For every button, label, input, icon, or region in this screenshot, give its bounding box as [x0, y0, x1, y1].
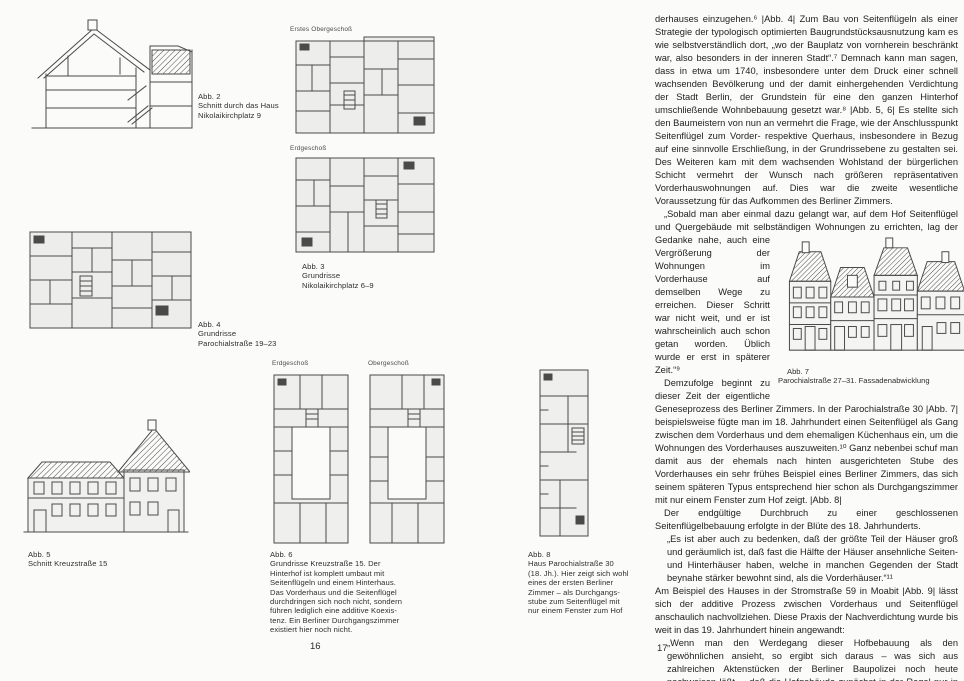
page-left: Abb. 2 Schnitt durch das Haus Nikolaikir… — [0, 0, 612, 681]
body-text-column: derhauses einzugehen.⁶ |Abb. 4| Zum Bau … — [655, 13, 958, 681]
fig7-figure: Abb. 7 Parochialstraße 27–31. Fassadenab… — [778, 236, 958, 386]
fig3-plans: Erstes Obergeschoß Erdgeschoß — [288, 26, 440, 259]
paragraph: „Sobald man aber einmal dazu gelangt war… — [655, 208, 958, 377]
paragraph: Der endgültige Durchbruch zu einer gesch… — [655, 507, 958, 533]
fig6-label-right: Obergeschoß — [368, 360, 448, 367]
page-number-left: 16 — [310, 641, 321, 652]
fig4-caption: Abb. 4 Grundrisse Parochialstraße 19–23 — [198, 320, 318, 348]
fig8-plan-drawing — [528, 366, 600, 540]
fig4-plan-drawing — [28, 228, 193, 331]
fig3-label-lower: Erdgeschoß — [290, 145, 440, 152]
fig5-elevation-drawing — [22, 418, 190, 542]
paragraph-text: „Sobald man aber einmal dazu gelangt war… — [655, 209, 958, 232]
fig5-caption: Abb. 5 Schnitt Kreuzstraße 15 — [28, 550, 178, 569]
fig6-label-left: Erdgeschoß — [272, 360, 352, 367]
page-right: derhauses einzugehen.⁶ |Abb. 4| Zum Bau … — [612, 0, 964, 681]
paragraph: derhauses einzugehen.⁶ |Abb. 4| Zum Bau … — [655, 13, 958, 208]
fig7-caption: Abb. 7 Parochialstraße 27–31. Fassadenab… — [778, 367, 958, 386]
book-spread: Abb. 2 Schnitt durch das Haus Nikolaikir… — [0, 0, 964, 681]
fig3-plan-lower-drawing — [288, 154, 438, 254]
fig6-plan-left-drawing — [270, 369, 352, 547]
fig3-plan-upper-drawing — [288, 35, 438, 135]
page-number-right: 17 — [657, 643, 668, 654]
block-quote: „Wenn man den Werdegang dieser Hofbebauu… — [655, 637, 958, 681]
fig7-facade-drawing — [787, 236, 964, 358]
fig2-section-drawing — [28, 16, 196, 138]
fig3-caption: Abb. 3 Grundrisse Nikolaikirchplatz 6–9 — [302, 262, 422, 290]
fig6-caption: Abb. 6 Grundrisse Kreuzstraße 15. Der Hi… — [270, 550, 435, 635]
fig6-plan-right-drawing — [366, 369, 448, 547]
block-quote: „Es ist aber auch zu bedenken, daß der g… — [655, 533, 958, 585]
fig3-label-upper: Erstes Obergeschoß — [290, 26, 440, 33]
paragraph: Am Beispiel des Hauses in der Stromstraß… — [655, 585, 958, 637]
paragraph: Demzufolge beginnt zu dieser Zeit der ei… — [655, 377, 958, 507]
fig6-plans: Erdgeschoß Obergeschoß — [270, 360, 464, 552]
